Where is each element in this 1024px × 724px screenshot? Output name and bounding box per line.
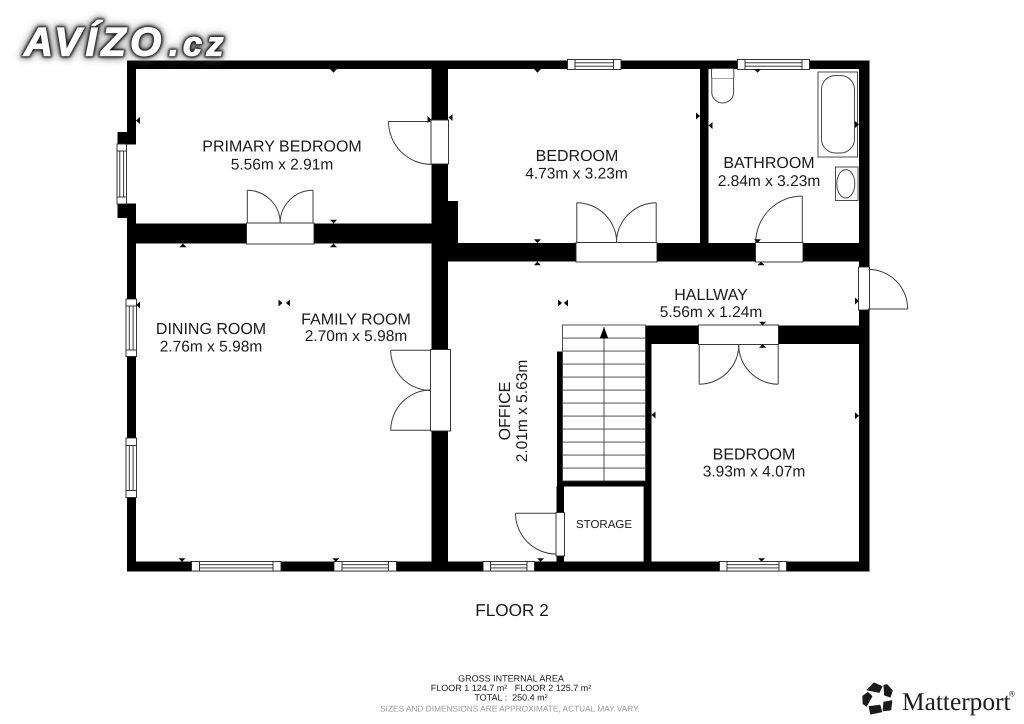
svg-text:5.56m x 2.91m: 5.56m x 2.91m [231, 157, 334, 174]
svg-text:FLOOR 1 124.7 m² FLOOR 2 125: FLOOR 1 124.7 m² FLOOR 2 125.7 m² [431, 683, 592, 693]
svg-text:FAMILY ROOM: FAMILY ROOM [301, 312, 411, 329]
svg-text:BEDROOM: BEDROOM [536, 148, 619, 165]
svg-text:2.01m x 5.63m: 2.01m x 5.63m [514, 360, 531, 463]
svg-text:2.76m x 5.98m: 2.76m x 5.98m [160, 339, 263, 356]
svg-text:3.93m x 4.07m: 3.93m x 4.07m [703, 464, 806, 481]
svg-text:HALLWAY: HALLWAY [674, 287, 748, 304]
svg-text:.cz: .cz [169, 26, 228, 64]
svg-text:2.84m x 3.23m: 2.84m x 3.23m [718, 173, 821, 190]
svg-text:GROSS INTERNAL AREA: GROSS INTERNAL AREA [458, 674, 564, 684]
svg-text:STORAGE: STORAGE [576, 519, 632, 531]
svg-text:®: ® [1009, 690, 1015, 699]
svg-text:Matterport: Matterport [902, 688, 1011, 716]
svg-text:PRIMARY BEDROOM: PRIMARY BEDROOM [202, 139, 361, 156]
svg-text:SIZES AND DIMENSIONS ARE APPRO: SIZES AND DIMENSIONS ARE APPROXIMATE, AC… [380, 704, 640, 714]
svg-text:FLOOR 2: FLOOR 2 [475, 600, 549, 620]
svg-text:AVÍZO: AVÍZO [23, 20, 166, 65]
svg-text:BATHROOM: BATHROOM [723, 155, 814, 172]
svg-text:4.73m x 3.23m: 4.73m x 3.23m [525, 166, 628, 183]
svg-text:2.70m x 5.98m: 2.70m x 5.98m [305, 328, 408, 345]
svg-text:DINING ROOM: DINING ROOM [156, 321, 266, 338]
svg-text:5.56m x 1.24m: 5.56m x 1.24m [660, 304, 763, 321]
svg-text:TOTAL : 250.4 m²: TOTAL : 250.4 m² [474, 693, 547, 703]
svg-text:OFFICE: OFFICE [497, 382, 514, 441]
svg-text:BEDROOM: BEDROOM [713, 447, 796, 464]
